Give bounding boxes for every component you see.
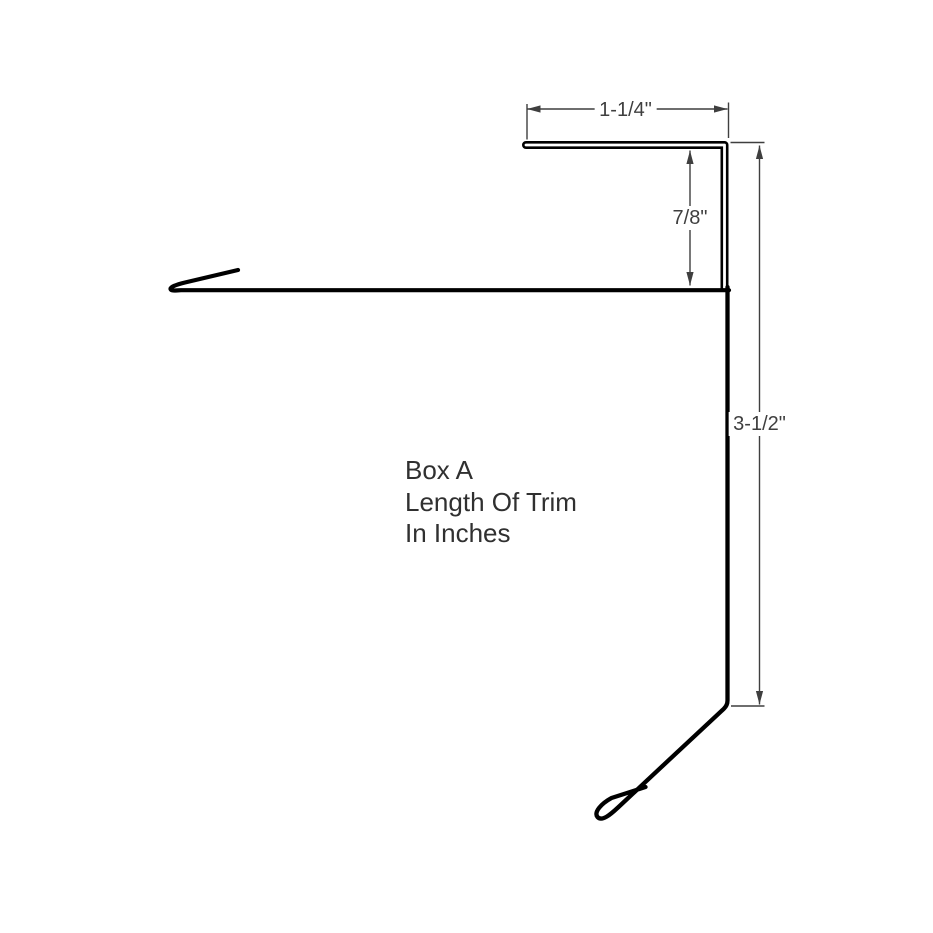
- arrowhead-down-small-icon: [686, 272, 693, 286]
- note-line-2: Length Of Trim: [405, 487, 577, 519]
- note-line-3: In Inches: [405, 518, 577, 550]
- arrowhead-up-small-icon: [686, 151, 693, 165]
- trim-profile-diagram: 1-1/4" 7/8" 3-1/2" Box A Length Of Trim …: [0, 0, 933, 933]
- arrowhead-right-icon: [714, 105, 728, 112]
- trim-long-leg-with-left-hem: [171, 270, 729, 290]
- dim-label-face-height: 7/8": [668, 206, 713, 230]
- dim-label-overall-height: 3-1/2": [728, 412, 791, 436]
- arrowhead-down-tall-icon: [756, 691, 763, 705]
- note-line-1: Box A: [405, 455, 577, 487]
- trim-vertical-leg-with-kick-hem: [596, 287, 727, 819]
- dim-label-top-width: 1-1/4": [594, 98, 657, 122]
- arrowhead-up-tall-icon: [756, 146, 763, 160]
- note-block: Box A Length Of Trim In Inches: [405, 455, 577, 550]
- arrowhead-left-icon: [527, 105, 541, 112]
